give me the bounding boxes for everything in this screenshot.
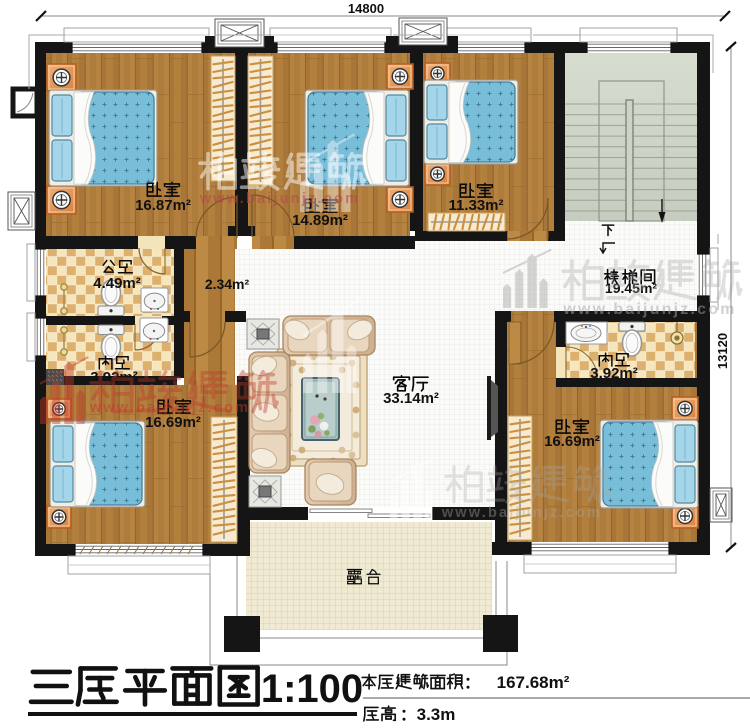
svg-text:16.87m²: 16.87m² (135, 197, 191, 214)
svg-text:www.baijunjz.com: www.baijunjz.com (562, 301, 736, 318)
svg-text:14800: 14800 (348, 1, 384, 16)
svg-text:14.89m²: 14.89m² (292, 212, 348, 229)
svg-text:16.69m²: 16.69m² (544, 433, 600, 450)
svg-text:167.68m²: 167.68m² (497, 673, 570, 692)
svg-text:：: ： (400, 707, 416, 724)
svg-text:4.49m²: 4.49m² (93, 275, 141, 292)
svg-text:33.14m²: 33.14m² (383, 390, 439, 407)
svg-text:：: ： (464, 675, 480, 692)
svg-text:2.34m²: 2.34m² (205, 276, 250, 292)
svg-text:16.69m²: 16.69m² (145, 414, 201, 431)
svg-text:3.92m²: 3.92m² (590, 365, 638, 382)
svg-text:3.3m: 3.3m (417, 705, 456, 724)
svg-text:www.baijunjz.com: www.baijunjz.com (89, 400, 250, 416)
svg-text:www.baijunjz.com: www.baijunjz.com (199, 191, 360, 207)
svg-text:1:100: 1:100 (261, 667, 363, 711)
svg-text:11.33m²: 11.33m² (448, 197, 503, 214)
svg-text:13120: 13120 (715, 333, 730, 369)
svg-text:www.baijunjz.com: www.baijunjz.com (441, 505, 602, 521)
